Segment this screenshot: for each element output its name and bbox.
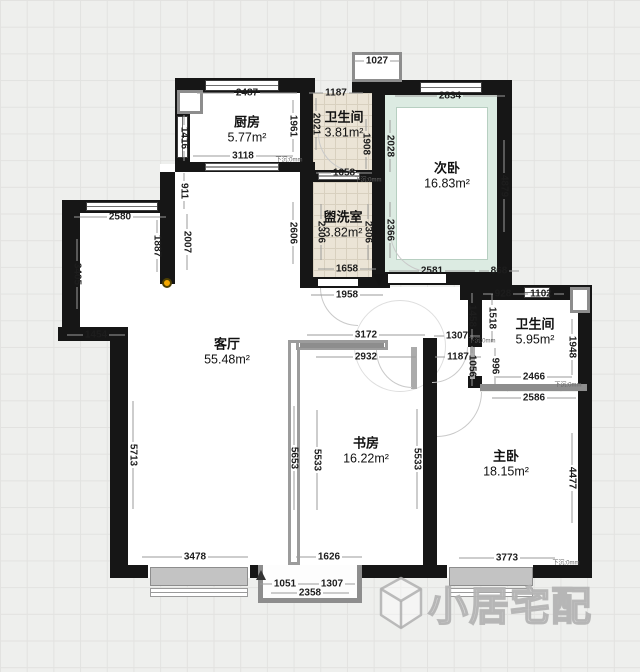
room-area: 3.82m²: [323, 225, 362, 239]
room-area: 18.15m²: [483, 464, 529, 478]
room-label-study: 书房16.22m²: [343, 436, 389, 465]
floorplan-canvas: 厨房5.77m²卫生间3.81m²次卧16.83m²盥洗室3.82m²客厅55.…: [0, 0, 640, 672]
room-label-bath2: 卫生间5.95m²: [515, 317, 554, 346]
dimension-laundry-opening: 1958: [311, 290, 383, 301]
dimension-value: 868: [491, 266, 508, 277]
dimension-kitchen-left: 1416: [179, 115, 190, 161]
room-area: 5.77m²: [228, 130, 267, 144]
dimension-value: 2358: [299, 588, 321, 599]
dimension-bath1-top: 1187: [309, 88, 363, 99]
dimension-value: 1187: [325, 88, 347, 99]
dimension-value: 3118: [232, 151, 254, 162]
dimension-living-bottom: 3478: [142, 552, 248, 563]
dimension-bath2-door: 996: [490, 348, 501, 384]
room-label-kitchen: 厨房5.77m²: [228, 115, 267, 144]
dimension-value: 2366: [385, 219, 396, 241]
dimension-value: 1102: [530, 289, 552, 300]
dimension-value: 1056: [467, 355, 478, 377]
dimension-value: 911: [179, 183, 190, 199]
dimension-value: 2007: [182, 231, 193, 253]
room-label-bath1: 卫生间3.81m²: [324, 110, 363, 139]
dimension-value: 2021: [311, 113, 322, 135]
dimension-value: 3405: [72, 263, 83, 285]
room-area: 3.81m²: [324, 125, 363, 139]
dimension-kitchen-top: 2487: [197, 88, 297, 99]
dimension-value: 1307: [446, 331, 468, 342]
dimension-value: 4477: [567, 467, 578, 489]
dimension-value: 3773: [496, 553, 518, 564]
dimension-master-right: 4477: [567, 433, 578, 523]
dimension-study-top-inner: 2932: [316, 352, 416, 363]
dimension-value: 1416: [179, 127, 190, 149]
dimension-dining-step: 1454: [67, 330, 125, 341]
dimension-value: 2580: [109, 212, 131, 223]
room-label-living: 客厅55.48m²: [204, 337, 250, 366]
dimension-value: 1626: [318, 552, 340, 563]
dimension-laundry-left-inner: 2306: [316, 204, 327, 260]
dimension-value: 1961: [288, 115, 299, 137]
dimension-bed2-bottom-left: 2581: [389, 266, 475, 277]
sunken-note: 下沉:0mm: [552, 558, 579, 567]
dimension-bath2-left-outer: 1458: [467, 293, 478, 339]
dimension-value: 1454: [85, 330, 107, 341]
room-name: 主卧: [483, 449, 529, 464]
dimension-dining-left: 3405: [72, 239, 83, 309]
room-area: 16.83m²: [424, 176, 470, 190]
dimension-stub-mid: 1887: [152, 220, 163, 272]
dimension-value: 2306: [363, 221, 374, 243]
sunken-note: 下沉:0mm: [354, 175, 381, 184]
dimension-bath2-top-right: 1102: [518, 289, 564, 300]
dimension-value: 1887: [152, 235, 163, 257]
room-name: 盥洗室: [323, 210, 362, 225]
dimension-bath1-right: 1908: [361, 119, 372, 169]
dimension-study-top-outer: 3172: [307, 330, 425, 341]
dimension-value: 2586: [523, 393, 545, 404]
dimension-value: 2834: [439, 91, 461, 102]
dimension-living-left: 5713: [128, 401, 139, 509]
dimension-value: 2028: [385, 135, 396, 157]
dimension-value: 1908: [361, 133, 372, 155]
dimension-bed2-left: 2028: [385, 120, 396, 172]
dimension-bath2-left-lower: 1056: [467, 346, 478, 386]
dimension-entry-total: 2358: [271, 588, 349, 599]
dimension-bed2-top: 2834: [395, 91, 505, 102]
dimension-top-duct-w: 1027: [354, 56, 400, 67]
room-label-bedroom2: 次卧16.83m²: [424, 161, 470, 190]
room-name: 书房: [343, 436, 389, 451]
dimension-master-bottom: 3773: [459, 553, 555, 564]
dimension-bed2-left-inner: 2366: [385, 202, 396, 258]
dimension-value: 1948: [567, 336, 578, 358]
dimension-value: 5653: [289, 447, 300, 469]
room-label-laundry: 盥洗室3.82m²: [323, 210, 362, 239]
room-area: 16.22m²: [343, 451, 389, 465]
dimension-bath2-right: 1948: [567, 319, 578, 375]
dimension-value: 2466: [523, 372, 545, 383]
dimension-value: 2606: [288, 222, 299, 244]
dimension-study-bottom: 1626: [296, 552, 362, 563]
dimension-value: 4879: [499, 175, 510, 197]
dimension-kitchen-right: 1961: [288, 100, 299, 152]
dimension-value: 3478: [184, 552, 206, 563]
dimension-value: 2306: [316, 221, 327, 243]
dimension-value: 996: [490, 358, 501, 375]
dimension-value: 3172: [355, 330, 377, 341]
sunken-note: 下沉:0mm: [468, 336, 495, 345]
room-name: 卫生间: [515, 317, 554, 332]
dimension-value: 5533: [412, 448, 423, 470]
dimension-value: 2487: [236, 88, 258, 99]
dimension-value: 1658: [336, 264, 358, 275]
room-name: 卫生间: [324, 110, 363, 125]
sunken-note: 下沉:0mm: [554, 380, 581, 389]
dimension-study-left-outer: 5653: [289, 406, 300, 510]
room-area: 5.95m²: [515, 332, 554, 346]
sunken-note: 下沉:0mm: [275, 155, 302, 164]
dimension-stub-right: 2007: [182, 214, 193, 270]
dimension-bath1-left: 2021: [311, 98, 322, 150]
room-label-master: 主卧18.15m²: [483, 449, 529, 478]
dimension-value: 5533: [312, 449, 323, 471]
dimension-value: 1458: [467, 305, 478, 327]
dimension-value: 1658: [333, 168, 355, 179]
room-area: 55.48m²: [204, 352, 250, 366]
room-name: 厨房: [228, 115, 267, 130]
dimension-value: 1958: [336, 290, 358, 301]
dimension-value: 2581: [421, 266, 443, 277]
dimension-master-top: 2586: [492, 393, 576, 404]
dimension-value: 1027: [366, 56, 388, 67]
dimension-value: 5713: [128, 444, 139, 466]
dimension-stub-left: 911: [179, 173, 190, 209]
dimension-study-left-inner: 5533: [312, 410, 323, 510]
room-name: 次卧: [424, 161, 470, 176]
dimension-value: 2932: [355, 352, 377, 363]
room-name: 客厅: [204, 337, 250, 352]
dimension-laundry-left-outer: 2606: [288, 202, 299, 264]
dimension-study-right-inner: 5533: [412, 409, 423, 509]
dimension-laundry-bottom: 1658: [318, 264, 376, 275]
dimension-bed2-bottom-right: 868: [479, 266, 519, 277]
dimension-bed2-right: 4879: [499, 140, 510, 232]
labels-layer: 厨房5.77m²卫生间3.81m²次卧16.83m²盥洗室3.82m²客厅55.…: [0, 0, 640, 672]
dimension-value: 1518: [487, 307, 498, 329]
dimension-laundry-right-inner: 2306: [363, 204, 374, 260]
